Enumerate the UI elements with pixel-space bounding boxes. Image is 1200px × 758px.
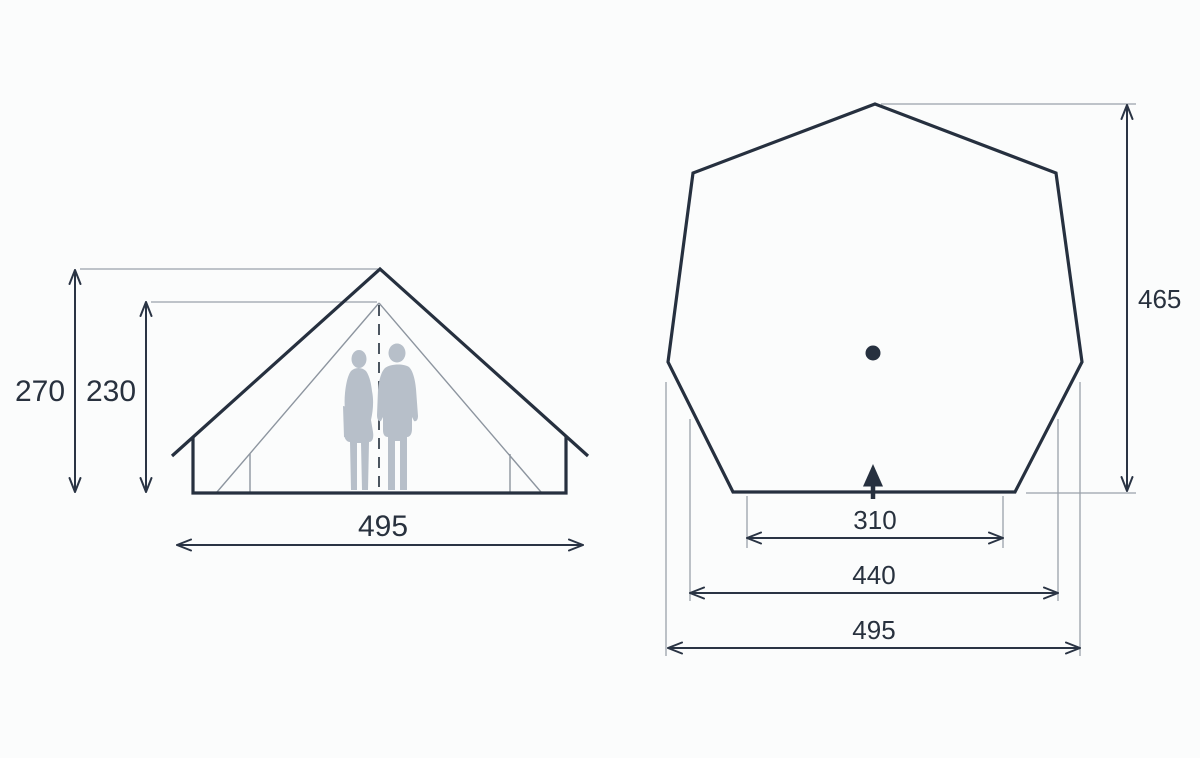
dimension-270-label: 270 <box>15 375 65 408</box>
dimension-230-line <box>141 302 152 492</box>
plan-extension-lines <box>666 104 1136 656</box>
center-pole-dot <box>866 346 881 361</box>
tent-dimensions-diagram: 270 230 49 <box>0 0 1200 758</box>
woman-silhouette <box>343 350 373 490</box>
man-silhouette <box>377 344 418 491</box>
dimension-465-line <box>1122 105 1133 491</box>
dimension-270-line <box>70 270 81 492</box>
dimension-230-label: 230 <box>86 375 136 408</box>
dimension-465-label: 465 <box>1138 284 1181 314</box>
plan-view: 465 310 440 495 <box>666 104 1181 656</box>
dimension-440-label: 440 <box>852 560 895 590</box>
entrance-arrow <box>863 464 883 499</box>
dimension-310-label: 310 <box>853 505 896 535</box>
side-elevation-view: 270 230 49 <box>15 269 588 551</box>
tent-footprint-outline <box>668 104 1082 492</box>
tent-roof-outline <box>172 269 588 456</box>
dimension-495-plan-label: 495 <box>852 615 895 645</box>
people-silhouettes <box>343 344 418 491</box>
diagram-canvas: 270 230 49 <box>0 0 1200 758</box>
dimension-495-side-label: 495 <box>358 510 408 543</box>
